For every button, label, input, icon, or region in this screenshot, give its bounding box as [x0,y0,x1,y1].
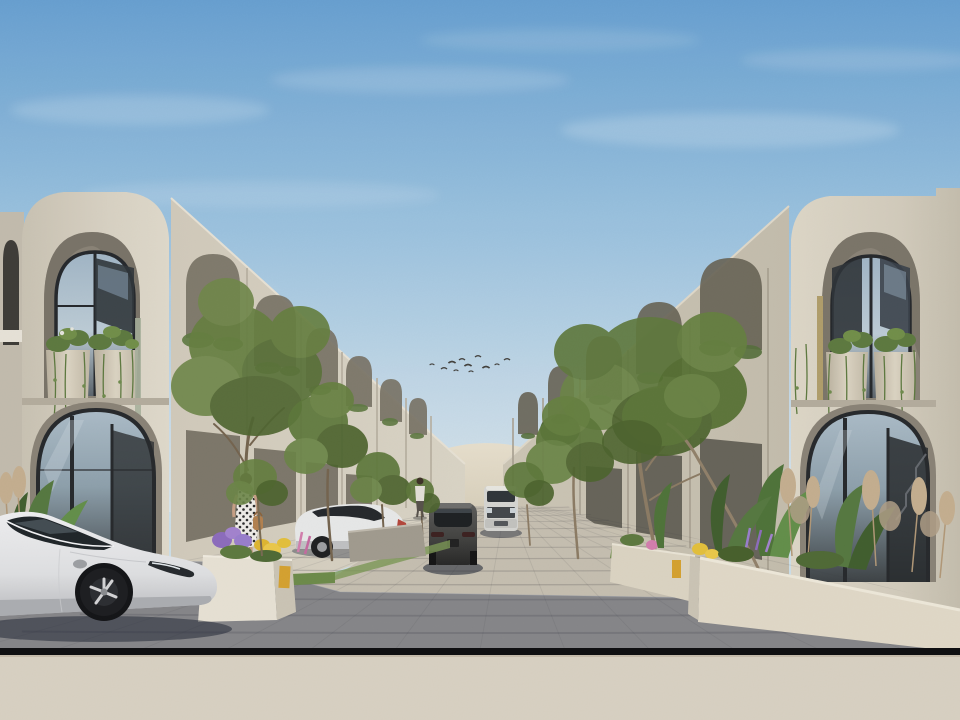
film-grain-overlay [0,0,960,720]
street-render [0,0,960,720]
render-viewport: Daytime 3D architectural rendering of a … [0,0,960,720]
